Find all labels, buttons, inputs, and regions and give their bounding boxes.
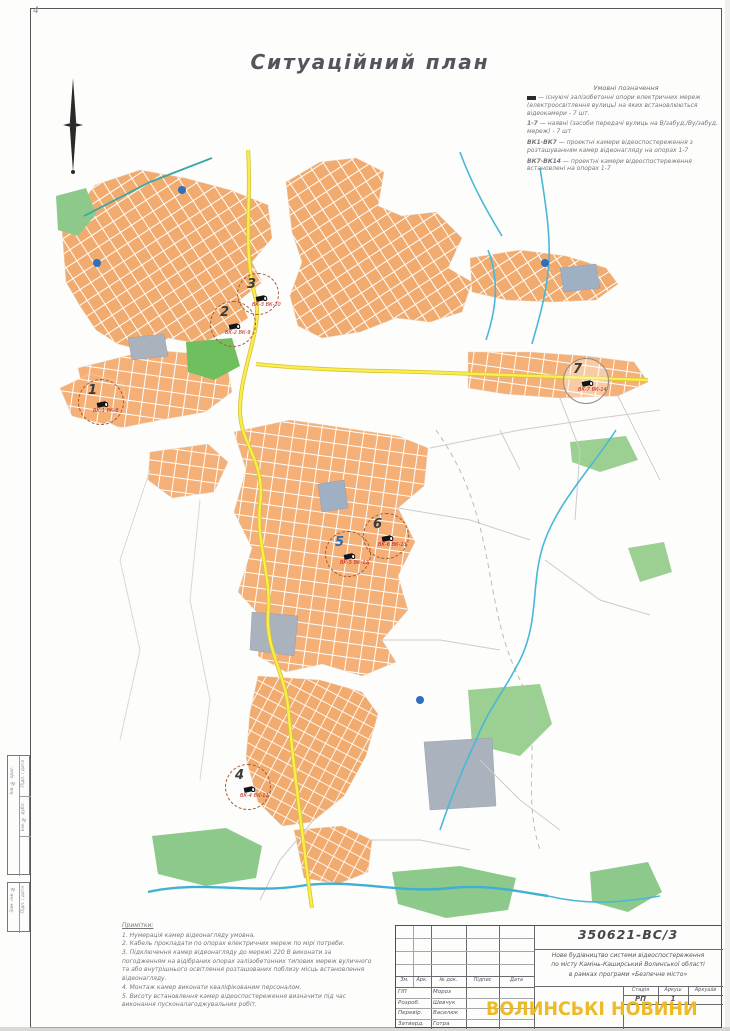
camera-labels: ВК-7 ВК-14 (578, 387, 607, 393)
side-stamp-label: Підп. і дата (21, 760, 26, 787)
tb-role: Розроб. (398, 1000, 430, 1006)
tb-role: Затверд. (398, 1021, 430, 1027)
note-line: 5. Висоту встановлення камер відеоспосте… (122, 993, 372, 1010)
camera-labels: ВК-2 ВК-9 (225, 330, 251, 336)
note-line: 3. Підключення камер відеонагляду до мер… (122, 949, 372, 984)
pole-symbol-icon (527, 96, 536, 100)
side-stamp-box: Зам. інв. № Підп. і дата (7, 882, 30, 932)
marker-number: 2 (220, 305, 229, 320)
camera-marker-6: 6 ВК-6 ВК-13 (363, 513, 409, 559)
note-line: 2. Кабель прокладати по опорах електричн… (122, 940, 372, 949)
description-line: Нове будівництво системи відеоспостереже… (535, 951, 721, 960)
tb-header-cell: Зм. (396, 977, 413, 983)
camera-icon (382, 535, 392, 541)
tb-stage-label: Стадія (623, 987, 658, 993)
tb-role: Перевір. (398, 1010, 430, 1016)
drawing-sheet: 4 Ситуаційний план Умовні позначення — і… (0, 0, 730, 1031)
notes-block: Примітки: 1. Нумерація камер відеонагляд… (122, 922, 372, 1010)
tb-role-name: Василюк (433, 1010, 465, 1016)
tb-role-name: Шевчук (433, 1000, 465, 1006)
camera-marker-1: 1 ВК-1 ВК-8 (78, 379, 124, 425)
tb-header-cell: Підпис (466, 977, 499, 983)
camera-labels: ВК-5 ВК-12 (340, 560, 369, 566)
tb-role-name: Мороз (433, 989, 465, 995)
camera-labels: ВК-3 ВК-10 (252, 302, 281, 308)
side-stamp-label: Зам. інв. № (10, 886, 15, 913)
tb-header-cell: Дата (499, 977, 534, 983)
camera-labels: ВК-1 ВК-8 (93, 408, 119, 414)
legend-heading: Умовні позначення (527, 84, 725, 92)
description-line: по місту Камінь-Каширський Волинської об… (535, 960, 721, 969)
scan-edge-right (725, 0, 730, 1031)
notes-heading: Примітки: (122, 922, 372, 931)
legend-item-prefix: ВК7-ВК14 (527, 158, 561, 165)
marker-number: 6 (373, 517, 382, 532)
corner-pencil-mark: 4 (33, 6, 39, 16)
legend-item-text: — існуючі залізобетонні опори електрични… (527, 94, 701, 117)
tb-stage-label: Аркушів (688, 987, 723, 993)
camera-labels: ВК-6 ВК-13 (378, 542, 407, 548)
camera-icon (97, 401, 107, 407)
side-stamp-label: Підп. і дата (21, 886, 26, 913)
legend: Умовні позначення — існуючі залізобетонн… (527, 84, 725, 176)
tb-header-cell: № док. (431, 977, 466, 983)
tb-header-cell: Арк. (413, 977, 431, 983)
camera-icon (256, 295, 266, 301)
watermark: ВОЛИНСЬКІ НОВИНИ (486, 998, 699, 1020)
north-arrow-icon (60, 76, 86, 176)
tb-stage-label: Аркуш (658, 987, 688, 993)
camera-marker-7: 7 ВК-7 ВК-14 (563, 358, 609, 404)
camera-icon (344, 553, 354, 559)
legend-item: ВК1-ВК7— проектні камери відеоспостереже… (527, 139, 725, 155)
camera-marker-4: 4 ВК-4 ВК-11 (225, 764, 271, 810)
tb-role: ГІП (398, 989, 430, 995)
marker-number: 5 (335, 535, 344, 550)
tb-role-name: Готра (433, 1021, 465, 1027)
marker-number: 7 (573, 362, 582, 377)
camera-icon (229, 323, 239, 329)
marker-number: 3 (247, 277, 256, 292)
legend-item-prefix: ВК1-ВК7 (527, 139, 557, 146)
legend-item-text: — наявні (засоби передачі вулиць на В/за… (527, 120, 718, 135)
page-title: Ситуаційний план (250, 50, 490, 74)
camera-marker-3: 3 ВК-3 ВК-10 (237, 273, 279, 315)
description-line: в рамках програми «Безпечне місто» (535, 970, 721, 979)
note-line: 4. Монтаж камер виконати кваліфікованим … (122, 984, 372, 993)
camera-labels: ВК-4 ВК-11 (240, 793, 269, 799)
side-stamp-box: Інв. № ориг. Підп. і дата Інв. № дубл. (7, 755, 30, 875)
legend-item: — існуючі залізобетонні опори електрични… (527, 94, 725, 117)
camera-icon (582, 380, 592, 386)
marker-number: 4 (235, 768, 244, 783)
note-line: 1. Нумерація камер відеонагляду умовна. (122, 932, 372, 941)
camera-icon (244, 786, 254, 792)
legend-item: 1-7— наявні (засоби передачі вулиць на В… (527, 120, 725, 136)
marker-number: 1 (88, 383, 97, 398)
side-stamp-label: Інв. № дубл. (21, 802, 26, 831)
side-stamp-label: Інв. № ориг. (10, 766, 15, 795)
legend-item: ВК7-ВК14— проектні камери відеоспостереж… (527, 158, 725, 174)
project-description: Нове будівництво системи відеоспостереже… (535, 951, 721, 979)
legend-item-prefix: 1-7 (527, 120, 538, 127)
document-number: 350621-ВС/3 (535, 927, 721, 942)
